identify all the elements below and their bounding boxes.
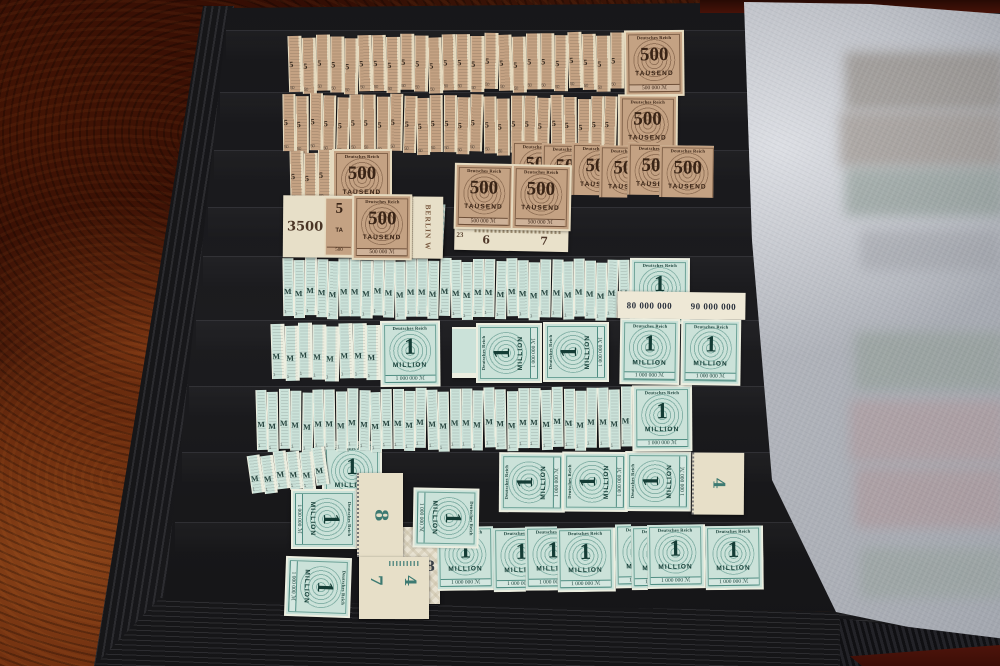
stamp-text-ftr: 1 000 000 ℳ <box>651 576 701 585</box>
stockbook-photo: 3500 5 TA 500 Deutsches Reich500TAUSEND5… <box>0 0 1000 666</box>
stamp-sliver: M1 <box>325 326 339 381</box>
stamp-1-million-rotated-slot: Deutsches Reich1MILLION1 000 000 ℳ <box>500 453 564 511</box>
rotated-stamp-sliver <box>452 327 476 378</box>
stamp-sliver: M1 <box>574 259 585 317</box>
stamp-sliver: M1 <box>495 261 508 319</box>
stamp-sliver: 550 <box>309 93 323 150</box>
stamp-500-tausend-slot: Deutsches Reich500TAUSEND500 000 ℳ <box>352 196 413 259</box>
stamp-clipped: Deutsches Reich500TAUSEND500 000 ℳ <box>627 143 660 195</box>
stamp-500-tausend: Deutsches Reich500TAUSEND500 000 ℳ <box>354 196 411 258</box>
stamp-sliver: 550 <box>330 36 344 92</box>
stamp-text-hd: Deutsches Reich <box>469 501 475 535</box>
stamp-text-num: 1 <box>322 513 342 525</box>
stamp-1-million: Deutsches Reich1MILLION1 000 000 ℳ <box>615 524 632 586</box>
stamp-text-ftr: 1 000 000 ℳ <box>679 457 687 507</box>
selvage-8: 8 <box>357 473 403 557</box>
stamp-clipped: Deutsches Reich1MILLION1 000 000 ℳ <box>631 526 648 590</box>
stamp-text-hd: Deutsches Reich <box>365 199 399 204</box>
selvage-hatch-marks <box>389 561 419 566</box>
stamp-text-hd: Deutsches Reich <box>639 146 660 151</box>
stamp-text-ftr: 1 000 000 ℳ <box>529 578 558 587</box>
stamp-clipped: Deutsches Reich1MILLION1 000 000 ℳ <box>615 524 632 588</box>
plate-23-label: 23 <box>456 231 463 239</box>
stamp-text-ftr: 1 000 000 ℳ <box>553 458 561 508</box>
sheet-margin-strip: 80 000 000 90 000 000 <box>617 291 745 320</box>
stamp-text-unit: TAUSEND <box>608 183 628 191</box>
stamp-sliver: M1 <box>428 261 440 319</box>
stamp-text-unit: MILLION <box>504 567 526 574</box>
stamp-text-hd: Deutsches Reich <box>630 464 635 498</box>
stamp-clipped: Deutsches Reich1MILLION1 000 000 ℳ <box>557 528 616 593</box>
stamp-text-hd: Deutsches Reich <box>481 336 486 370</box>
stamp-text-unit: TAUSEND <box>636 181 660 189</box>
stamp-sliver: 550 <box>344 38 359 94</box>
stamp-text-ftr: 500 000 ℳ <box>458 217 508 226</box>
stamp-sliver: 550 <box>470 36 484 92</box>
stamp-sliver: M1 <box>312 325 326 380</box>
stamp-sliver: M1 <box>562 261 574 319</box>
stamp-clipped: Deutsches Reich1MILLION1 000 000 ℳ <box>705 525 764 590</box>
stamp-500-tausend: Deutsches Reich500TAUSEND500 000 ℳ <box>626 32 683 95</box>
stamp-clipped: Deutsches Reich1MILLION1 000 000 ℳ <box>647 524 706 589</box>
stamp-text-ftr: 1 000 000 ℳ <box>288 561 298 611</box>
stamp-text-num: 500 <box>613 160 628 177</box>
stamp-sliver: 550 <box>282 94 296 151</box>
stamp-1-million: Deutsches Reich1MILLION1 000 000 ℳ <box>293 491 355 547</box>
stamp-text-unit: MILLION <box>302 569 310 604</box>
stamp-text-unit: MILLION <box>658 564 693 571</box>
ghost-stamp-row <box>845 52 1000 110</box>
rotated-strip-3-block: Deutsches Reich1MILLION1 000 000 ℳ Deuts… <box>500 451 750 519</box>
stamp-row-row9-bottom-1m: Deutsches Reich1MILLION1 000 000 ℳDeutsc… <box>437 522 764 591</box>
stamp-sliver: M1 <box>298 323 312 378</box>
stamp-text-num: 1 <box>515 476 535 488</box>
stamp-sliver: M1 <box>381 389 393 449</box>
plate-4b-label: 4 <box>401 575 420 586</box>
stamp-sliver: M1 <box>552 387 564 447</box>
stamp-text-hd: Deutsches Reich <box>637 35 671 40</box>
stamp-sliver: M1 <box>518 260 529 318</box>
plate-4-label: 4 <box>709 478 728 489</box>
stamp-sliver: M1 <box>462 262 473 320</box>
stamp-sliver: 550 <box>389 94 403 151</box>
stamp-text-hd: Deutsches Reich <box>631 99 665 104</box>
ghost-stamp-row <box>845 168 1000 216</box>
stamp-1-million: Deutsches Reich1MILLION1 000 000 ℳ <box>634 387 690 449</box>
pair-500-with-selvage: Deutsches Reich500TAUSEND500 000 ℳ Deuts… <box>454 165 570 252</box>
stamp-text-ftr: 500 000 ℳ <box>515 218 565 227</box>
stamp-sliver: 550 <box>469 94 484 151</box>
stamp-sliver: M1 <box>620 386 632 446</box>
stamp-1-million-slot: Deutsches Reich1MILLION1 000 000 ℳ <box>619 319 680 383</box>
stamp-sliver: M1 <box>324 389 336 449</box>
ghost-stamp-row <box>850 400 1000 462</box>
stamp-sliver: M1 <box>564 389 576 449</box>
stamp-sliver: M1 <box>338 258 350 316</box>
stamp-500-tausend: Deutsches Reich500TAUSEND500 000 ℳ <box>659 145 714 198</box>
stamp-text-hd: Deutsches Reich <box>548 335 553 369</box>
stamp-text-unit: MILLION <box>584 335 591 369</box>
stamp-sliver: M1 <box>282 258 294 316</box>
stamp-sliver: 550 <box>296 96 310 153</box>
stamp-sliver: 550 <box>567 32 583 88</box>
stamp-row-row7-1m: M1M1M1M1M1M1M1M1M1M1M1M1M1M1M1M1M1M1M1M1… <box>256 387 690 450</box>
sheet-80m-label: 80 000 000 <box>627 300 673 311</box>
stamp-text-hd: Deutsches Reich <box>583 146 600 151</box>
stamp-1-million: Deutsches Reich1MILLION1 000 000 ℳ <box>627 453 689 509</box>
partial-footer: 500 <box>327 247 350 253</box>
stamp-text-unit: MILLION <box>431 501 439 536</box>
stamp-sliver: M1 <box>393 389 405 449</box>
stamp-text-hd: Deutsches Reich <box>347 502 352 536</box>
stamp-sliver: M1 <box>609 389 621 449</box>
stamp-text-unit: MILLION <box>309 502 316 536</box>
selvage-block-3500: 3500 5 TA 500 Deutsches Reich500TAUSEND5… <box>283 195 444 258</box>
partial-unit: TA <box>335 228 343 234</box>
stamp-500-partial: 5 TA 500 <box>326 199 352 255</box>
stamp-sliver: M1 <box>394 262 406 320</box>
stamp-text-ftr: 1 000 000 ℳ <box>597 327 605 377</box>
stamp-text-hd: Deutsches Reich <box>671 148 705 153</box>
stamp-text-ftr: 1 000 000 ℳ <box>441 578 491 587</box>
stamp-text-num: 500 <box>469 180 498 197</box>
stamp-text-num: 1 <box>579 542 591 562</box>
ghost-stamp-row <box>855 332 1000 390</box>
stamp-sliver: 550 <box>484 33 499 89</box>
stamp-text-unit: TAUSEND <box>628 134 667 141</box>
stamp-sliver: M1 <box>316 259 328 317</box>
stamp-text-num: 500 <box>673 160 702 177</box>
stamp-1-million: Deutsches Reich1MILLION1 000 000 ℳ <box>493 528 526 590</box>
stamp-text-num: 1 <box>727 540 739 560</box>
stamp-text-num: 1 <box>315 581 335 593</box>
stamp-sliver: 550 <box>403 96 418 153</box>
ghost-stamp-row <box>840 112 1000 167</box>
stamp-sliver: M1 <box>472 390 484 450</box>
stamp-sliver: M1 <box>540 259 552 317</box>
stamp-1-million: Deutsches Reich1MILLION1 000 000 ℳ <box>415 489 478 546</box>
stamp-sliver: 550 <box>416 98 430 155</box>
stamp-500-tausend: Deutsches Reich500TAUSEND500 000 ℳ <box>627 143 660 195</box>
stamp-sliver: 550 <box>430 95 444 152</box>
stamp-500-tausend: Deutsches Reich500TAUSEND500 000 ℳ <box>599 145 628 197</box>
berlin-w-label: BERLIN W <box>423 205 432 251</box>
stamp-text-hd: Deutsches Reich <box>611 148 628 153</box>
stamp-1-million-rotated-slot: Deutsches Reich1MILLION1 000 000 ℳ <box>544 324 608 380</box>
pencil-3500-label: 3500 <box>287 219 323 234</box>
stamp-text-num: 1 <box>654 274 666 294</box>
stamp-1-million-rotated-slot: Deutsches Reich1MILLION1 000 000 ℳ <box>283 555 353 619</box>
stamp-sliver: M1 <box>586 388 598 448</box>
stamp-sliver: M1 <box>284 326 299 381</box>
stamp-sliver: 550 <box>316 35 331 91</box>
stamp-clipped: Deutsches Reich500TAUSEND500 000 ℳ <box>599 145 628 197</box>
stamp-1-million: Deutsches Reich1MILLION1 000 000 ℳ <box>564 454 626 510</box>
stamp-text-num: 1 <box>559 346 579 358</box>
stamp-text-num: 1 <box>705 335 717 355</box>
stamp-1-million-slot: Deutsches Reich1MILLION1 000 000 ℳ <box>680 320 741 384</box>
stamp-sliver: 550 <box>289 151 304 201</box>
stamp-text-unit: TAUSEND <box>464 203 503 211</box>
bottom-selvage: 23 6 7 <box>454 227 568 253</box>
stamp-sliver: M1 <box>366 325 380 380</box>
stamp-sliver: 550 <box>512 36 527 92</box>
stamp-sliver: M1 <box>270 324 285 379</box>
stamp-sliver: 550 <box>442 34 457 90</box>
plate-8-label: 8 <box>371 509 392 522</box>
stamp-text-num: 1 <box>641 475 661 487</box>
stamp-sliver: M1 <box>484 259 496 317</box>
stamp-1-million: Deutsches Reich1MILLION1 000 000 ℳ <box>557 528 614 591</box>
stamp-sliver: M1 <box>294 260 305 318</box>
stamp-text-ftr: 1 000 000 ℳ <box>616 457 624 507</box>
stamp-text-num: 500 <box>641 158 660 175</box>
stamp-text-unit: MILLION <box>716 565 751 572</box>
stamp-sliver: 550 <box>287 36 303 92</box>
stamp-sliver: 550 <box>596 36 611 92</box>
stamp-1-million: Deutsches Reich1MILLION1 000 000 ℳ <box>286 558 350 616</box>
stamp-text-ftr: 1 000 000 ℳ <box>497 579 526 588</box>
stamp-text-hd: Deutsches Reich <box>643 263 677 268</box>
stamp-text-num: 500 <box>633 111 662 127</box>
stamp-text-hd: Deutsches Reich <box>694 324 728 329</box>
stamp-text-ftr: 1 000 000 ℳ <box>637 439 687 447</box>
stamp-text-hd: Deutsches Reich <box>504 531 526 536</box>
stamp-text-ftr: 1 000 000 ℳ <box>295 494 303 544</box>
stamp-sliver: M1 <box>406 259 417 317</box>
plate-6-label: 6 <box>482 233 490 246</box>
stamp-text-unit: TAUSEND <box>668 183 707 191</box>
stamp-text-num: 1 <box>669 538 681 558</box>
stamp-text-unit: MILLION <box>540 465 547 499</box>
stamp-sliver: 550 <box>456 34 471 90</box>
stamp-sliver: 550 <box>414 36 429 92</box>
stamp-sliver: 550 <box>372 35 387 91</box>
stamp-sliver: M1 <box>438 392 450 452</box>
stamp-text-hd: Deutsches Reich <box>645 390 679 395</box>
partial-value: 5 <box>336 203 344 215</box>
stamp-text-hd: Deutsches Reich <box>393 326 427 331</box>
stamp-text-ftr: 1 000 000 ℳ <box>625 372 675 381</box>
ghost-stamp-row <box>855 468 1000 528</box>
stamp-500-tausend-slot: Deutsches Reich500TAUSEND500 000 ℳ <box>512 166 570 229</box>
stamp-1-million-rotated-slot: Deutsches Reich1MILLION1 000 000 ℳ <box>411 486 480 549</box>
stamp-row-row3-left-500t: 550550550Deutsches Reich500TAUSEND500 00… <box>290 151 390 201</box>
stamp-text-hd: Deutsches Reich <box>524 169 558 175</box>
stamp-text-ftr: 1 000 000 ℳ <box>530 328 538 378</box>
stamp-sliver: 550 <box>318 150 332 200</box>
stamp-1-million-rotated-slot: Deutsches Reich1MILLION1 000 000 ℳ <box>477 325 541 381</box>
stamp-text-hd: Deutsches Reich <box>467 168 501 174</box>
stamp-1-million: Deutsches Reich1MILLION1 000 000 ℳ <box>705 525 762 588</box>
stamp-text-ftr: 1 000 000 ℳ <box>417 493 426 543</box>
sheet-margin-80-90-block: 80 000 000 90 000 000 Deutsches Reich1MI… <box>616 291 745 385</box>
stamp-text-hd: Deutsches Reich <box>345 154 379 159</box>
stamp-text-hd: Deutsches Reich <box>658 527 692 532</box>
stamp-text-ftr: 1 000 000 ℳ <box>385 375 435 383</box>
stamp-sliver: 550 <box>610 33 624 89</box>
stamp-text-hd: Deutsches Reich <box>716 529 750 534</box>
stamp-1-million-rotated-slot: Deutsches Reich1MILLION1 000 000 ℳ <box>563 453 627 511</box>
stamp-sliver: M1 <box>506 258 518 316</box>
ghost-stamp-row <box>860 230 1000 270</box>
stamp-sliver: M1 <box>361 260 372 318</box>
plate-7-label: 7 <box>540 235 548 248</box>
stamp-1-million: Deutsches Reich1MILLION1 000 000 ℳ <box>631 526 648 588</box>
stamp-text-unit: MILLION <box>603 465 610 499</box>
stamp-sliver: 550 <box>443 95 457 152</box>
stamp-text-num: 500 <box>585 158 600 175</box>
stamp-sliver: 550 <box>357 35 373 91</box>
stamp-sliver: M1 <box>450 389 462 449</box>
stamp-sliver: M1 <box>372 257 384 315</box>
stamp-text-num: 1 <box>656 401 668 421</box>
stamp-text-unit: TAUSEND <box>580 181 600 189</box>
selvage-4: 4 <box>692 452 744 514</box>
stamp-sliver: 550 <box>336 97 351 154</box>
stamp-text-unit: TAUSEND <box>635 70 674 77</box>
stamp-text-ftr: 1 000 000 ℳ <box>619 576 632 585</box>
stamp-text-unit: MILLION <box>632 359 667 366</box>
stamp-text-ftr: 1 000 000 ℳ <box>709 577 759 586</box>
stamp-sliver: 550 <box>386 37 401 93</box>
stamp-text-unit: MILLION <box>536 565 558 572</box>
stamp-sliver: 550 <box>427 37 443 93</box>
stamp-sliver: M1 <box>347 388 359 448</box>
stamp-sliver: M1 <box>336 391 348 451</box>
stamp-sliver: 550 <box>497 99 511 156</box>
stamp-text-unit: MILLION <box>666 464 673 498</box>
stamp-sliver: M1 <box>450 260 462 318</box>
stamp-text-hd: Deutsches Reich <box>567 464 572 498</box>
stamp-sliver: M1 <box>529 388 541 448</box>
stamp-row-row6-left-1m: M1M1M1M1M1M1M1M1Deutsches Reich1MILLION1… <box>271 323 438 379</box>
stamp-text-unit: TAUSEND <box>521 204 560 212</box>
stamp-sliver: 550 <box>363 95 377 152</box>
stamp-sliver: 550 <box>483 96 497 153</box>
ghost-stamp-row <box>860 548 1000 598</box>
plate-7b-label: 7 <box>367 575 386 586</box>
stamp-clipped: Deutsches Reich1MILLION1 000 000 ℳ <box>525 526 558 590</box>
stamp-text-hd: Deutsches Reich <box>553 147 572 152</box>
stamp-sliver: M1 <box>279 389 291 449</box>
stamp-sliver: 550 <box>582 34 597 90</box>
stamp-text-unit: MILLION <box>517 336 524 370</box>
stamp-1-million: Deutsches Reich1MILLION1 000 000 ℳ <box>647 524 704 587</box>
stamp-text-ftr: 1 000 000 ℳ <box>561 580 611 589</box>
stamp-text-num: 1 <box>492 347 512 359</box>
stamp-text-num: 1 <box>404 337 416 357</box>
stamp-sliver: 550 <box>526 33 541 89</box>
stamp-500-tausend: Deutsches Reich500TAUSEND500 000 ℳ <box>571 143 600 195</box>
stamp-text-num: 500 <box>348 166 377 182</box>
stamp-text-unit: MILLION <box>448 566 483 573</box>
stamp-sliver: M1 <box>352 323 367 378</box>
stamp-text-hd: Deutsches Reich <box>568 531 602 536</box>
stamp-text-num: 500 <box>640 47 669 63</box>
stamp-text-unit: MILLION <box>693 360 728 367</box>
stamp-text-num: 500 <box>526 181 555 198</box>
stamp-1-million: Deutsches Reich1MILLION1 000 000 ℳ <box>682 321 739 384</box>
stamp-sliver: 550 <box>400 34 414 90</box>
stamp-sliver: M1 <box>290 391 302 451</box>
stamp-sliver: 550 <box>376 97 390 154</box>
stamp-500-tausend: Deutsches Reich500TAUSEND500 000 ℳ <box>512 166 569 229</box>
stamp-sliver: 550 <box>497 35 513 91</box>
stamp-row-row1-500t: 5505505505505505505505505505505505505505… <box>288 32 683 92</box>
stamp-text-hd: Deutsches Reich <box>340 571 346 606</box>
sheet-corner-margin: BERLIN W <box>412 196 443 258</box>
stamp-500-tausend-slot: Deutsches Reich500TAUSEND500 000 ℳ <box>455 165 513 228</box>
stamp-text-ftr: 1 000 000 ℳ <box>635 578 648 587</box>
stamp-1-million: Deutsches Reich1MILLION1 000 000 ℳ <box>382 323 439 385</box>
stamp-text-unit: MILLION <box>645 426 679 433</box>
stamp-sliver: M1 <box>507 391 519 451</box>
stamp-text-num: 1 <box>644 334 656 354</box>
stamp-sliver: 550 <box>540 33 554 89</box>
stamp-text-num: 1 <box>578 476 598 488</box>
stamp-text-ftr: 500 000 ℳ <box>357 248 407 256</box>
stamp-sliver: M1 <box>267 392 279 452</box>
stamp-text-ftr: 1 000 000 ℳ <box>686 373 736 382</box>
stamp-text-hd: Deutsches Reich <box>504 465 509 499</box>
stamp-text-unit: MILLION <box>568 567 603 574</box>
stamp-sliver: M1 <box>585 261 596 319</box>
stamp-text-unit: TAUSEND <box>363 234 402 241</box>
stamp-clipped: Deutsches Reich1MILLION1 000 000 ℳ <box>493 528 526 592</box>
stamp-1-million: Deutsches Reich1MILLION1 000 000 ℳ <box>478 325 540 381</box>
stamp-sliver: 550 <box>322 95 336 152</box>
stamp-1-million: Deutsches Reich1MILLION1 000 000 ℳ <box>621 320 678 383</box>
stamp-sliver: 550 <box>349 94 363 151</box>
stamp-1-million: Deutsches Reich1MILLION1 000 000 ℳ <box>545 324 607 380</box>
stamp-500-tausend: Deutsches Reich500TAUSEND500 000 ℳ <box>455 165 512 228</box>
stamp-sliver: M1 <box>338 323 353 378</box>
stamp-text-ftr: 500 000 ℳ <box>630 84 680 93</box>
stamp-text-hd: Deutsches Reich <box>523 144 542 149</box>
stamp-text-unit: MILLION <box>393 362 427 369</box>
stamp-1-million: Deutsches Reich1MILLION1 000 000 ℳ <box>501 454 563 510</box>
stamp-clipped: Deutsches Reich500TAUSEND500 000 ℳ <box>659 145 714 198</box>
stamp-sliver: M1 <box>305 257 316 315</box>
stamp-1-million: Deutsches Reich1MILLION1 000 000 ℳ <box>525 526 558 588</box>
stamp-1-million-rotated-slot: Deutsches Reich1MILLION1 000 000 ℳ <box>290 488 358 550</box>
stamp-text-num: 1 <box>444 512 464 524</box>
sheet-90m-label: 90 000 000 <box>691 301 737 312</box>
stamp-clipped: Deutsches Reich500TAUSEND500 000 ℳ <box>571 143 600 195</box>
stamp-sliver: M1 <box>551 259 564 317</box>
stamp-text-num: 500 <box>368 211 397 227</box>
stamp-sliver: 550 <box>302 38 317 94</box>
stamp-sliver: 550 <box>554 35 569 91</box>
stamp-sliver: M1 <box>350 258 361 316</box>
stamp-1-million-rotated-slot: Deutsches Reich1MILLION1 000 000 ℳ <box>626 452 690 510</box>
stamp-sliver: M1 <box>495 389 507 449</box>
stamp-text-hd: Deutsches Reich <box>536 529 558 534</box>
stamp-text-hd: Deutsches Reich <box>633 323 667 328</box>
selvage-7-4: 7 4 <box>359 557 429 619</box>
